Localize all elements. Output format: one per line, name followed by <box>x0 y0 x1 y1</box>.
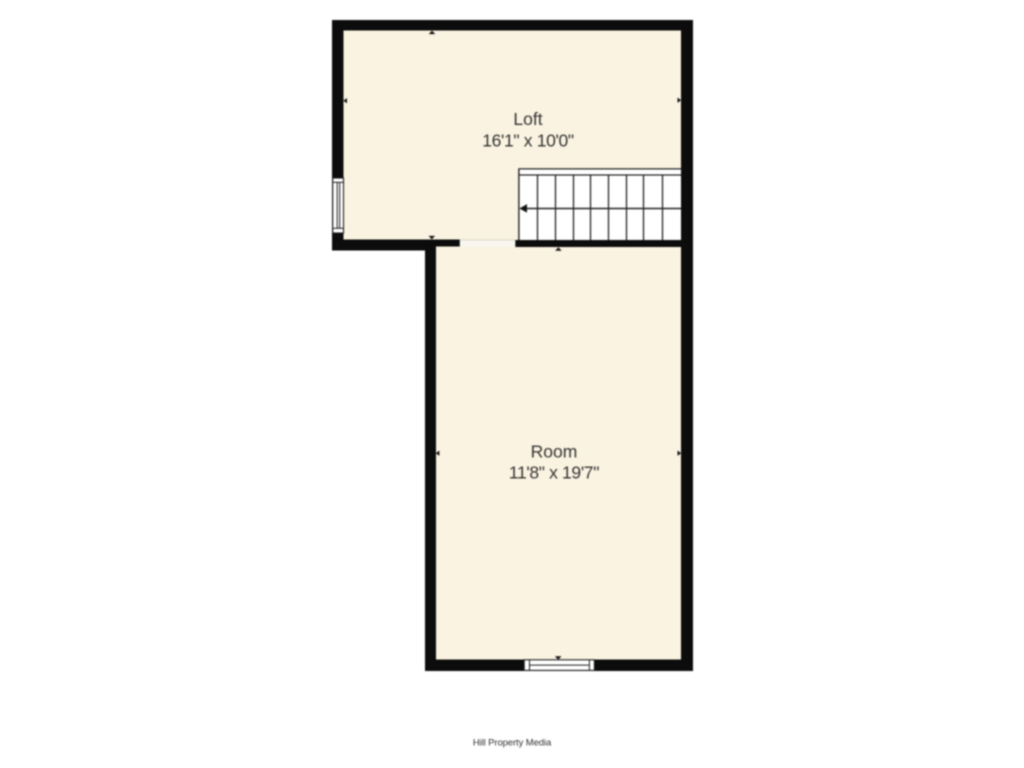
svg-text:Hill Property Media: Hill Property Media <box>473 738 552 749</box>
svg-text:11'8" x 19'7": 11'8" x 19'7" <box>509 463 599 483</box>
svg-text:Loft: Loft <box>513 109 542 129</box>
svg-text:Room: Room <box>531 442 578 462</box>
svg-text:16'1" x 10'0": 16'1" x 10'0" <box>482 131 574 151</box>
